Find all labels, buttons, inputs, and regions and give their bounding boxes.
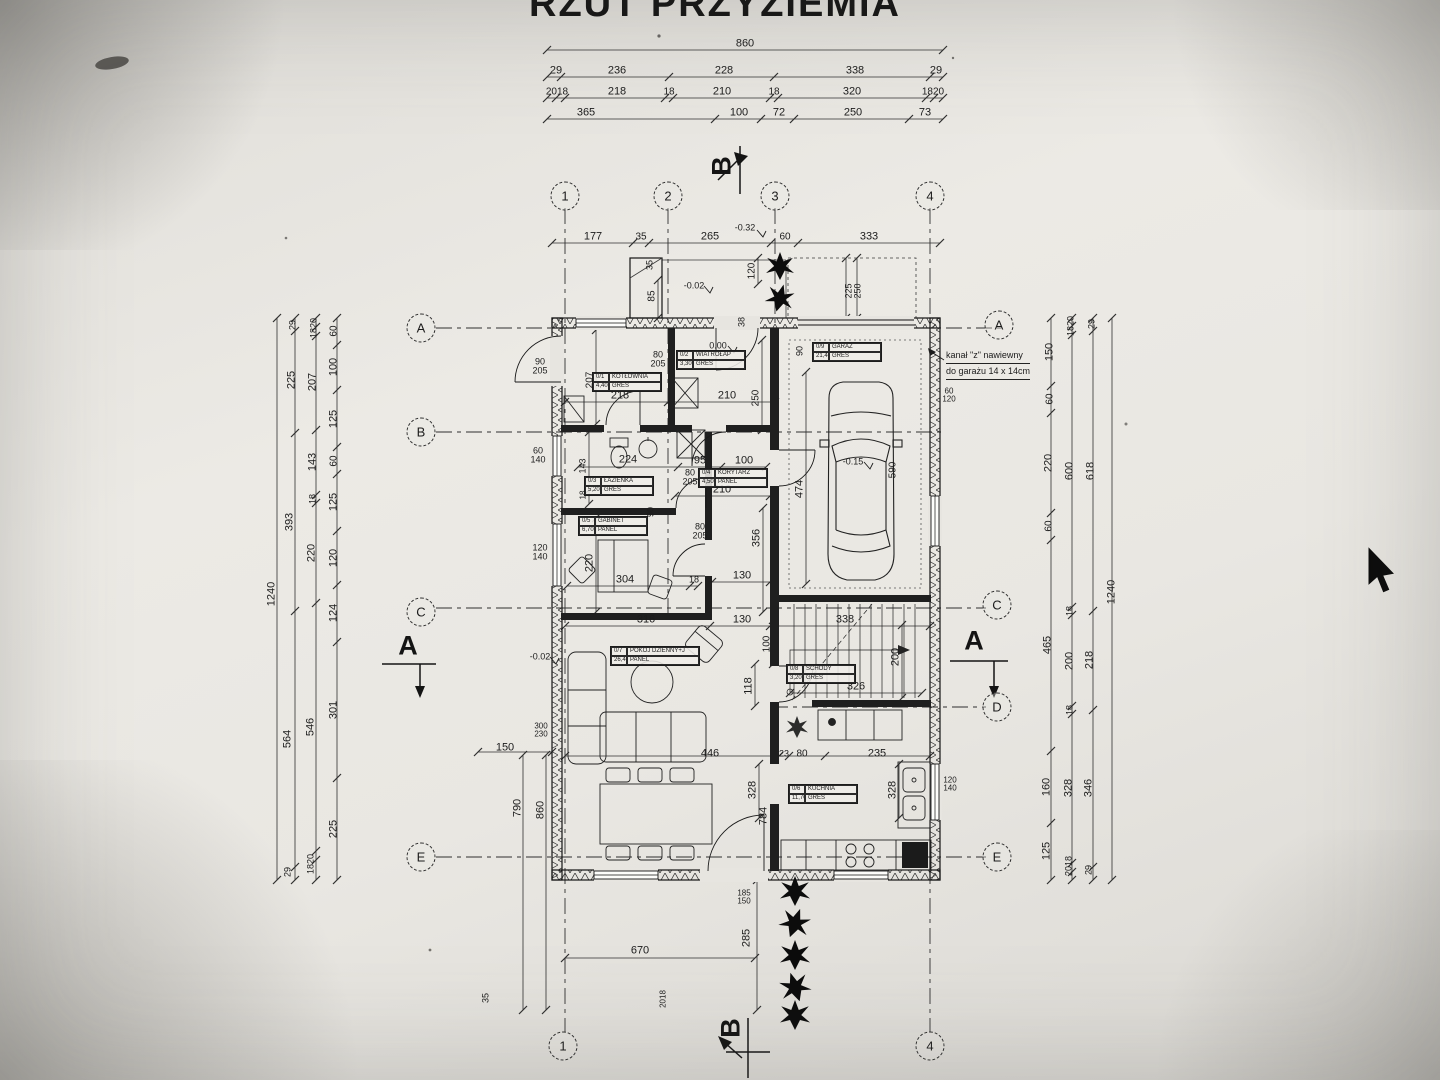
section-letter-A: A (964, 626, 984, 657)
section-letter-B: B (716, 1018, 747, 1038)
dim-label: 95 (694, 456, 706, 467)
room-area: 5,20m² (585, 486, 601, 495)
dim-label: 2018 (1064, 856, 1075, 876)
dim-label: 100 (735, 456, 753, 467)
grid-bubble-1: 1 (551, 182, 580, 211)
dim-label: 200 (891, 648, 902, 666)
room-floor: GRES (829, 352, 881, 361)
dim-label: 29 (1087, 319, 1098, 329)
dim-label: 250 (844, 108, 862, 119)
dim-label: 205 (682, 477, 697, 488)
dim-label: -0.15 (843, 457, 864, 468)
dim-label: 860 (736, 39, 754, 50)
dim-label: 124 (329, 604, 340, 622)
room-area: 6,70m² (579, 526, 595, 535)
dim-label: 29 (288, 320, 299, 330)
dim-label: 1820 (922, 87, 944, 98)
dim-label: 205 (650, 359, 665, 370)
dim-label: 205 (692, 531, 707, 542)
grid-bubble-D: D (983, 693, 1012, 722)
room-id: 0/4 (699, 469, 715, 478)
dim-label: 29 (1084, 865, 1095, 875)
section-letter-A: A (398, 631, 418, 662)
dim-label: 224 (619, 455, 637, 466)
dim-label: 1820 (306, 854, 317, 874)
dim-label: 784 (759, 807, 770, 825)
grid-bubble-4: 4 (916, 182, 945, 211)
dim-label: -0.32 (735, 223, 756, 234)
dim-label: 29 (550, 66, 562, 77)
dim-label: 60 (1044, 520, 1055, 531)
room-floor: GRES (803, 674, 855, 683)
grid-bubble-C: C (983, 591, 1012, 620)
dim-label: 210 (718, 391, 736, 402)
vent-duct-note-line1: kanał "z" nawiewny (946, 348, 1030, 364)
dim-label: 60 (329, 325, 340, 336)
room-label-0/3: 0/3ŁAZIENKA5,20m²GRES (584, 476, 654, 496)
room-area: 3,30m² (677, 360, 693, 369)
dim-label: 328 (1064, 779, 1075, 797)
dim-label: -0.02 (530, 652, 551, 663)
dim-label: 301 (329, 701, 340, 719)
dim-label: 1240 (267, 582, 278, 606)
room-name: WIATROŁAP (693, 351, 745, 360)
dim-label: 60 (1045, 393, 1056, 404)
room-area: 3,20m² (787, 674, 803, 683)
dim-label: 333 (860, 232, 878, 243)
dim-label: 218 (608, 87, 626, 98)
room-label-0/5: 0/5GABINET6,70m²PANEL (578, 516, 648, 536)
plant-icon (786, 716, 808, 738)
dim-label: 130 (733, 571, 751, 582)
dim-label: 235 (868, 749, 886, 760)
dim-label: 18 (689, 575, 699, 586)
grid-bubble-4: 4 (916, 1032, 945, 1061)
dim-label: 285 (742, 929, 753, 947)
dim-label: 328 (888, 781, 899, 799)
grid-bubble-E: E (407, 843, 436, 872)
mouse-cursor-icon (1368, 546, 1395, 593)
dim-label: 328 (748, 781, 759, 799)
dim-label: 72 (773, 108, 785, 119)
room-area: 4,50m² (699, 478, 715, 487)
dim-label: 35 (635, 232, 646, 243)
room-floor: GRES (609, 382, 661, 391)
grid-bubble-3: 3 (761, 182, 790, 211)
dim-label: 2018 (546, 87, 568, 98)
grid-bubble-C: C (407, 598, 436, 627)
dim-label: 80 (796, 749, 807, 760)
dim-label: 29 (283, 867, 294, 877)
dim-label: 18 (1065, 606, 1076, 616)
grid-bubble-B: B (407, 418, 436, 447)
room-label-0/6: 0/6KUCHNIA11,70m²GRES (788, 784, 858, 804)
dim-label: 143 (578, 458, 589, 473)
room-name: KOTŁOWNIA (609, 373, 661, 382)
dim-label: 85 (647, 290, 658, 301)
dim-label: 790 (513, 799, 524, 817)
room-floor: GRES (693, 360, 745, 369)
dim-label: 150 (496, 743, 514, 754)
dim-label: 18 (1065, 705, 1076, 715)
room-name: POKÓJ DZIENNY+J (627, 647, 699, 656)
dim-label: 120 (329, 549, 340, 567)
dim-label: 218 (1085, 651, 1096, 669)
room-area: 11,70m² (789, 794, 805, 803)
dim-label: 546 (306, 718, 317, 736)
grid-bubble-2: 2 (654, 182, 683, 211)
room-area: 26,40m² (611, 656, 627, 665)
dim-label: 250 (853, 283, 864, 298)
dim-label: 338 (846, 66, 864, 77)
room-name: GABINET (595, 517, 647, 526)
dim-label: 600 (1065, 462, 1076, 480)
room-name: SCHODY (803, 665, 855, 674)
dim-label: 90 (795, 346, 806, 356)
room-name: GARAŻ (829, 343, 881, 352)
dim-label: 23 (779, 749, 789, 760)
dim-label: 670 (631, 946, 649, 957)
dim-label: 860 (536, 801, 547, 819)
vent-duct-note: kanał "z" nawiewny do garażu 14 x 14cm (946, 348, 1030, 380)
dim-label: 29 (930, 66, 942, 77)
dim-label: 18 (663, 87, 674, 98)
dim-label: 365 (577, 108, 595, 119)
dim-label: 474 (795, 480, 806, 498)
room-id: 0/3 (585, 477, 601, 486)
dim-label: 225 (329, 820, 340, 838)
room-floor: PANEL (595, 526, 647, 535)
dim-label: 2018 (658, 990, 669, 1008)
room-area: 4,40m² (593, 382, 609, 391)
dim-label: 1240 (1107, 580, 1118, 604)
dim-label: 143 (308, 453, 319, 471)
dim-label: 140 (532, 552, 547, 563)
dim-label: 465 (1043, 636, 1054, 654)
dim-label: 250 (751, 390, 762, 407)
dim-label: 125 (1042, 842, 1053, 860)
dim-label: 346 (1084, 779, 1095, 797)
room-floor: GRES (601, 486, 653, 495)
dim-label: 35 (645, 260, 656, 270)
dim-label: 220 (585, 554, 596, 572)
grid-axis-lines (436, 208, 1004, 1032)
dim-label: 225 (287, 371, 298, 389)
dim-label: 150 (1045, 343, 1056, 361)
vent-duct-note-line2: do garażu 14 x 14cm (946, 364, 1030, 380)
dim-label: 100 (762, 636, 773, 653)
dim-label: 236 (608, 66, 626, 77)
dim-label: 35 (481, 993, 492, 1003)
dim-label: 60 (779, 232, 790, 243)
dim-label: 18 (308, 494, 319, 504)
screenshot-root: RZUT PRZYZIEMIA kanał "z" nawiewny do ga… (0, 0, 1440, 1080)
dim-label: 356 (752, 529, 763, 547)
dim-label: 316 (637, 615, 655, 626)
room-id: 0/1 (593, 373, 609, 382)
room-area: 21,40m² (813, 352, 829, 361)
section-letter-B: B (707, 156, 738, 176)
room-id: 0/5 (579, 517, 595, 526)
dim-label: 140 (530, 455, 545, 466)
dim-label: 73 (919, 108, 931, 119)
room-id: 0/9 (813, 343, 829, 352)
dim-label: 218 (611, 391, 629, 402)
dim-label: 118 (744, 677, 755, 695)
dim-label: 338 (836, 615, 854, 626)
dim-label: 205 (532, 366, 547, 377)
dim-label: 220 (307, 544, 318, 562)
room-floor: PANEL (627, 656, 699, 665)
dim-label: 140 (943, 783, 956, 794)
dim-label: 590 (888, 462, 899, 479)
room-label-0/1: 0/1KOTŁOWNIA4,40m²GRES (592, 372, 662, 392)
grid-bubble-A: A (985, 311, 1014, 340)
grid-bubble-1: 1 (549, 1032, 578, 1061)
dim-label: 393 (285, 513, 296, 531)
dim-label: -0.02 (684, 281, 705, 292)
room-id: 0/7 (611, 647, 627, 656)
dim-label: 304 (616, 575, 634, 586)
room-name: KUCHNIA (805, 785, 857, 794)
room-name: ŁAZIENKA (601, 477, 653, 486)
dim-label: 100 (730, 108, 748, 119)
dim-label: 100 (329, 358, 340, 376)
room-label-0/7: 0/7POKÓJ DZIENNY+J26,40m²PANEL (610, 646, 700, 666)
dim-label: 160 (1042, 778, 1053, 796)
dim-label: 320 (843, 87, 861, 98)
dim-label: 230 (534, 729, 547, 740)
room-floor: PANEL (715, 478, 767, 487)
room-id: 0/8 (787, 665, 803, 674)
page-title: RZUT PRZYZIEMIA (529, 0, 901, 26)
dim-label: 130 (733, 615, 751, 626)
dim-label: 177 (584, 232, 602, 243)
dim-label: 207 (308, 373, 319, 391)
dim-label: 228 (715, 66, 733, 77)
car-icon (820, 382, 902, 580)
dim-label: 564 (283, 730, 294, 748)
room-name: KORYTARZ (715, 469, 767, 478)
room-id: 0/2 (677, 351, 693, 360)
dim-label: 38 (737, 317, 748, 327)
room-floor: GRES (805, 794, 857, 803)
grid-bubble-E: E (983, 843, 1012, 872)
dim-label: 120 (747, 263, 758, 280)
dim-label: 150 (737, 896, 750, 907)
dim-label: 265 (701, 232, 719, 243)
dim-label: 200 (1065, 652, 1076, 670)
dim-label: 18 (768, 87, 779, 98)
dim-label: 120 (942, 394, 955, 405)
grid-bubble-A: A (407, 314, 436, 343)
room-id: 0/6 (789, 785, 805, 794)
dim-label: 125 (329, 410, 340, 428)
room-label-0/2: 0/2WIATROŁAP3,30m²GRES (676, 350, 746, 370)
room-label-0/4: 0/4KORYTARZ4,50m²PANEL (698, 468, 768, 488)
dim-label: 125 (329, 493, 340, 511)
dim-label: 618 (1086, 462, 1097, 480)
dim-label: 210 (713, 87, 731, 98)
room-label-0/8: 0/8SCHODY3,20m²GRES (786, 664, 856, 684)
room-label-0/9: 0/9GARAŻ21,40m²GRES (812, 342, 882, 362)
dim-label: 60 (329, 455, 340, 466)
dim-label: 446 (701, 749, 719, 760)
dim-label: 1820 (1066, 316, 1077, 336)
dim-label: 220 (1044, 454, 1055, 472)
dim-label: 1820 (309, 318, 320, 338)
